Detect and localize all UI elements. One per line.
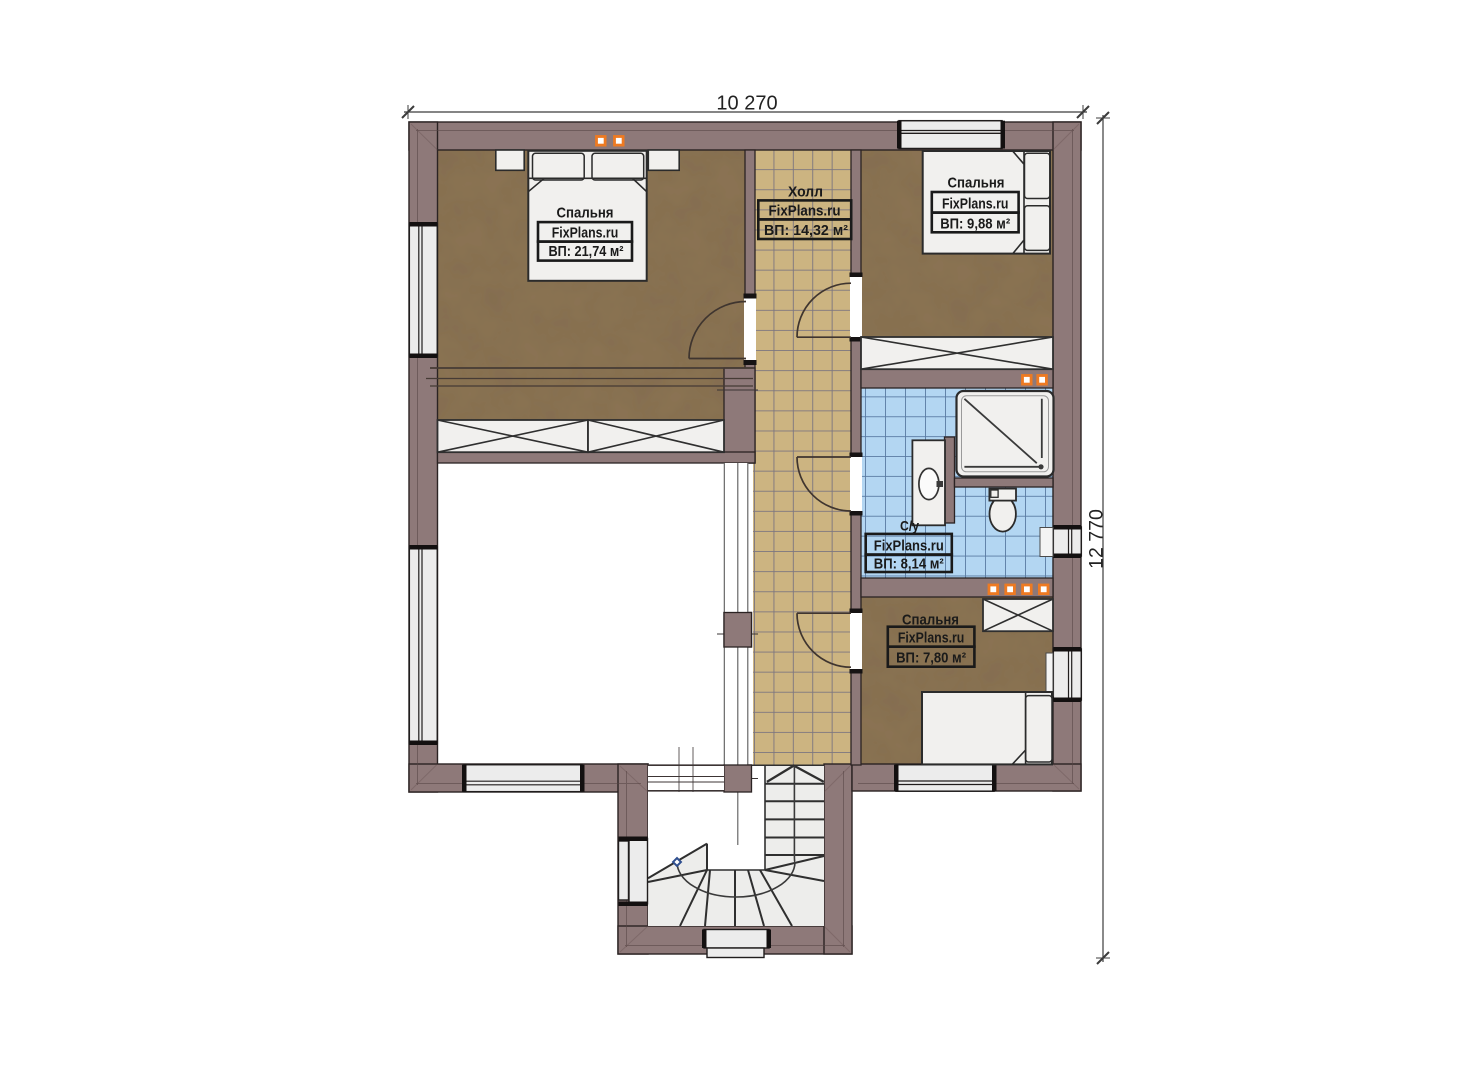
svg-text:12 770: 12 770 [1086,509,1108,569]
svg-text:ВП: 14,32 м²: ВП: 14,32 м² [764,223,848,239]
svg-text:Холл: Холл [788,183,823,200]
svg-text:С/у: С/у [900,518,919,534]
svg-text:FixPlans.ru: FixPlans.ru [942,197,1009,213]
svg-text:Спальня: Спальня [557,204,614,221]
svg-text:10 270: 10 270 [716,93,777,115]
svg-text:ВП: 21,74 м²: ВП: 21,74 м² [549,244,624,260]
svg-text:ВП: 7,80 м²: ВП: 7,80 м² [896,651,966,667]
svg-text:ВП: 9,88 м²: ВП: 9,88 м² [940,217,1010,233]
svg-text:Спальня: Спальня [948,175,1005,192]
svg-text:FixPlans.ru: FixPlans.ru [898,631,965,647]
svg-text:FixPlans.ru: FixPlans.ru [769,203,841,219]
svg-text:FixPlans.ru: FixPlans.ru [874,539,944,555]
svg-text:FixPlans.ru: FixPlans.ru [552,225,619,241]
svg-text:ВП: 8,14 м²: ВП: 8,14 м² [874,557,944,573]
